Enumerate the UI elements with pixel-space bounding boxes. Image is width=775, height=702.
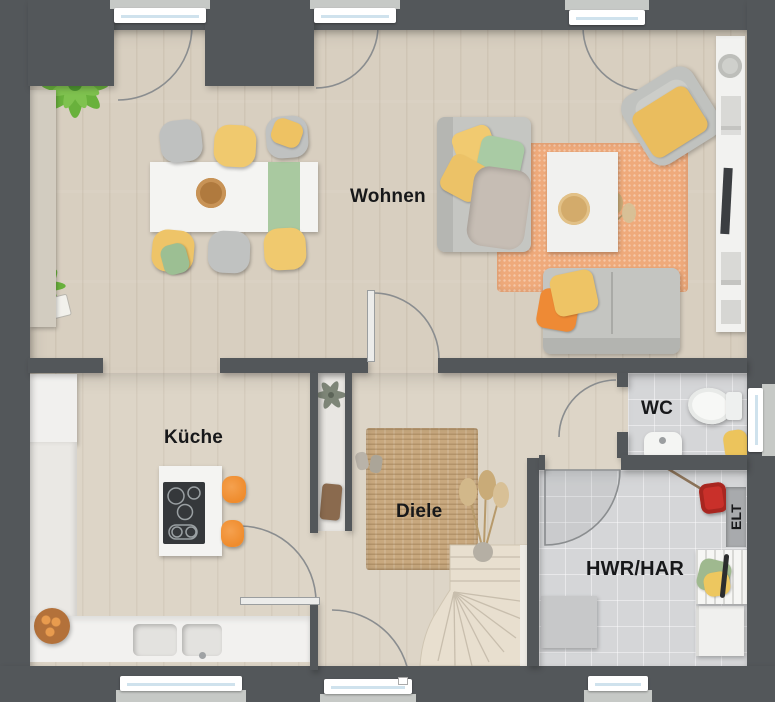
books xyxy=(721,252,741,280)
gray-cabinet xyxy=(541,596,597,648)
cooktop-burners xyxy=(163,482,205,544)
door-step xyxy=(320,694,416,702)
window-kitchen xyxy=(120,676,242,691)
floor-plan: Wohnen Küche Diele WC HWR/HAR ELT xyxy=(0,0,775,702)
table-runner xyxy=(268,162,300,232)
washing-machine xyxy=(696,606,744,656)
window-sill xyxy=(584,690,652,702)
bar-stool xyxy=(221,520,244,547)
hallway-jute-rug xyxy=(366,428,478,570)
wall-niche xyxy=(345,373,352,531)
room-label-kueche: Küche xyxy=(164,427,223,449)
dining-chair-gray xyxy=(207,230,250,273)
counter-left xyxy=(28,442,77,618)
books xyxy=(721,96,741,126)
hall-living-door-leaf xyxy=(367,290,375,362)
window-living-2 xyxy=(314,8,396,23)
kitchen-door-leaf xyxy=(240,597,320,605)
sofa-blanket xyxy=(465,164,534,251)
round-basket xyxy=(718,54,742,78)
front-door-handle xyxy=(398,677,408,685)
room-label-diele: Diele xyxy=(396,501,442,523)
wall-right xyxy=(747,0,775,702)
jute-tray xyxy=(558,193,590,225)
fruit-bowl xyxy=(34,608,70,644)
loveseat-backrest xyxy=(543,338,680,354)
tall-fridge-cabinet xyxy=(28,374,77,444)
window-living-1 xyxy=(114,8,206,23)
window-sill xyxy=(116,690,246,702)
room-label-hwr: HWR/HAR xyxy=(586,558,684,581)
wall-mid-center xyxy=(220,358,368,373)
toilet-cistern xyxy=(726,392,742,420)
window-living-3 xyxy=(569,10,645,25)
room-label-wc: WC xyxy=(641,398,673,420)
wall-kitchen-hall-upper xyxy=(310,373,318,533)
room-label-wohnen: Wohnen xyxy=(350,186,426,208)
window-hwr xyxy=(588,676,648,691)
wall-mid-left xyxy=(28,358,103,373)
window-wc xyxy=(748,388,763,452)
laundry-basket-red xyxy=(698,481,729,514)
wall-kitchen-hall-lower xyxy=(310,600,318,670)
wall-pier xyxy=(28,0,114,86)
wall-pier xyxy=(205,0,314,86)
basin-faucet xyxy=(659,437,666,444)
books xyxy=(721,300,741,324)
wall-left xyxy=(0,0,30,702)
dining-chair-gray xyxy=(158,118,204,164)
room-label-elt: ELT xyxy=(728,487,744,547)
faucet xyxy=(199,652,206,659)
sideboard xyxy=(30,90,56,327)
loveseat-cushion-gap xyxy=(611,272,613,334)
dining-chair-yellow xyxy=(213,124,257,168)
centerpiece-bowl xyxy=(196,178,226,208)
window-sill xyxy=(565,0,649,10)
wall-wc-hwr xyxy=(621,455,747,470)
pillow-yellow xyxy=(548,268,600,318)
window-sill xyxy=(762,384,775,456)
wall-wc-left-upper xyxy=(617,373,628,387)
wall-hwr-left xyxy=(527,458,539,666)
dining-chair-yellow xyxy=(263,227,307,271)
niche-bag xyxy=(319,483,342,521)
wall-mid-right xyxy=(438,358,747,373)
sink-left xyxy=(133,624,177,656)
bar-stool xyxy=(222,476,246,503)
wall-hwr-top-stub xyxy=(539,455,545,470)
